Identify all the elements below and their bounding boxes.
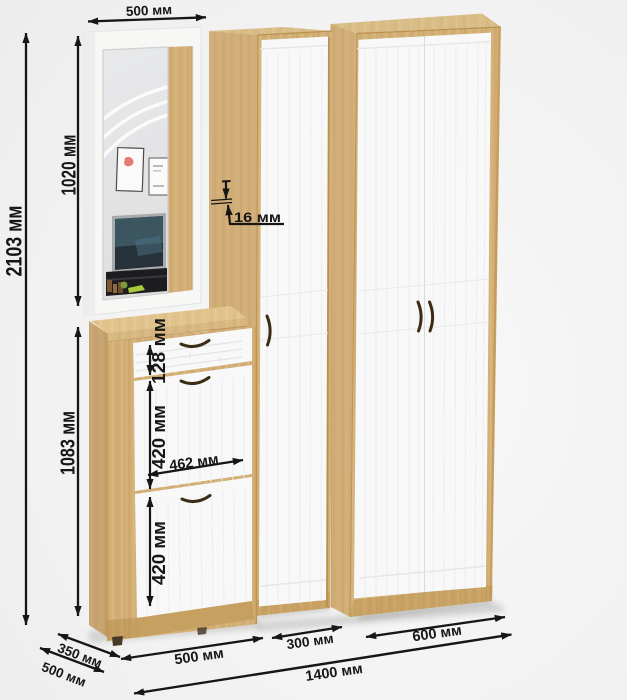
svg-text:128 мм: 128 мм xyxy=(149,318,169,384)
svg-text:1083 мм: 1083 мм xyxy=(57,411,80,475)
svg-text:1020 мм: 1020 мм xyxy=(58,135,81,196)
svg-text:2103 мм: 2103 мм xyxy=(2,206,27,277)
svg-text:420 мм: 420 мм xyxy=(149,521,169,585)
svg-text:500 мм: 500 мм xyxy=(126,2,173,19)
svg-text:420 мм: 420 мм xyxy=(149,405,169,469)
svg-text:16 мм: 16 мм xyxy=(234,209,281,225)
